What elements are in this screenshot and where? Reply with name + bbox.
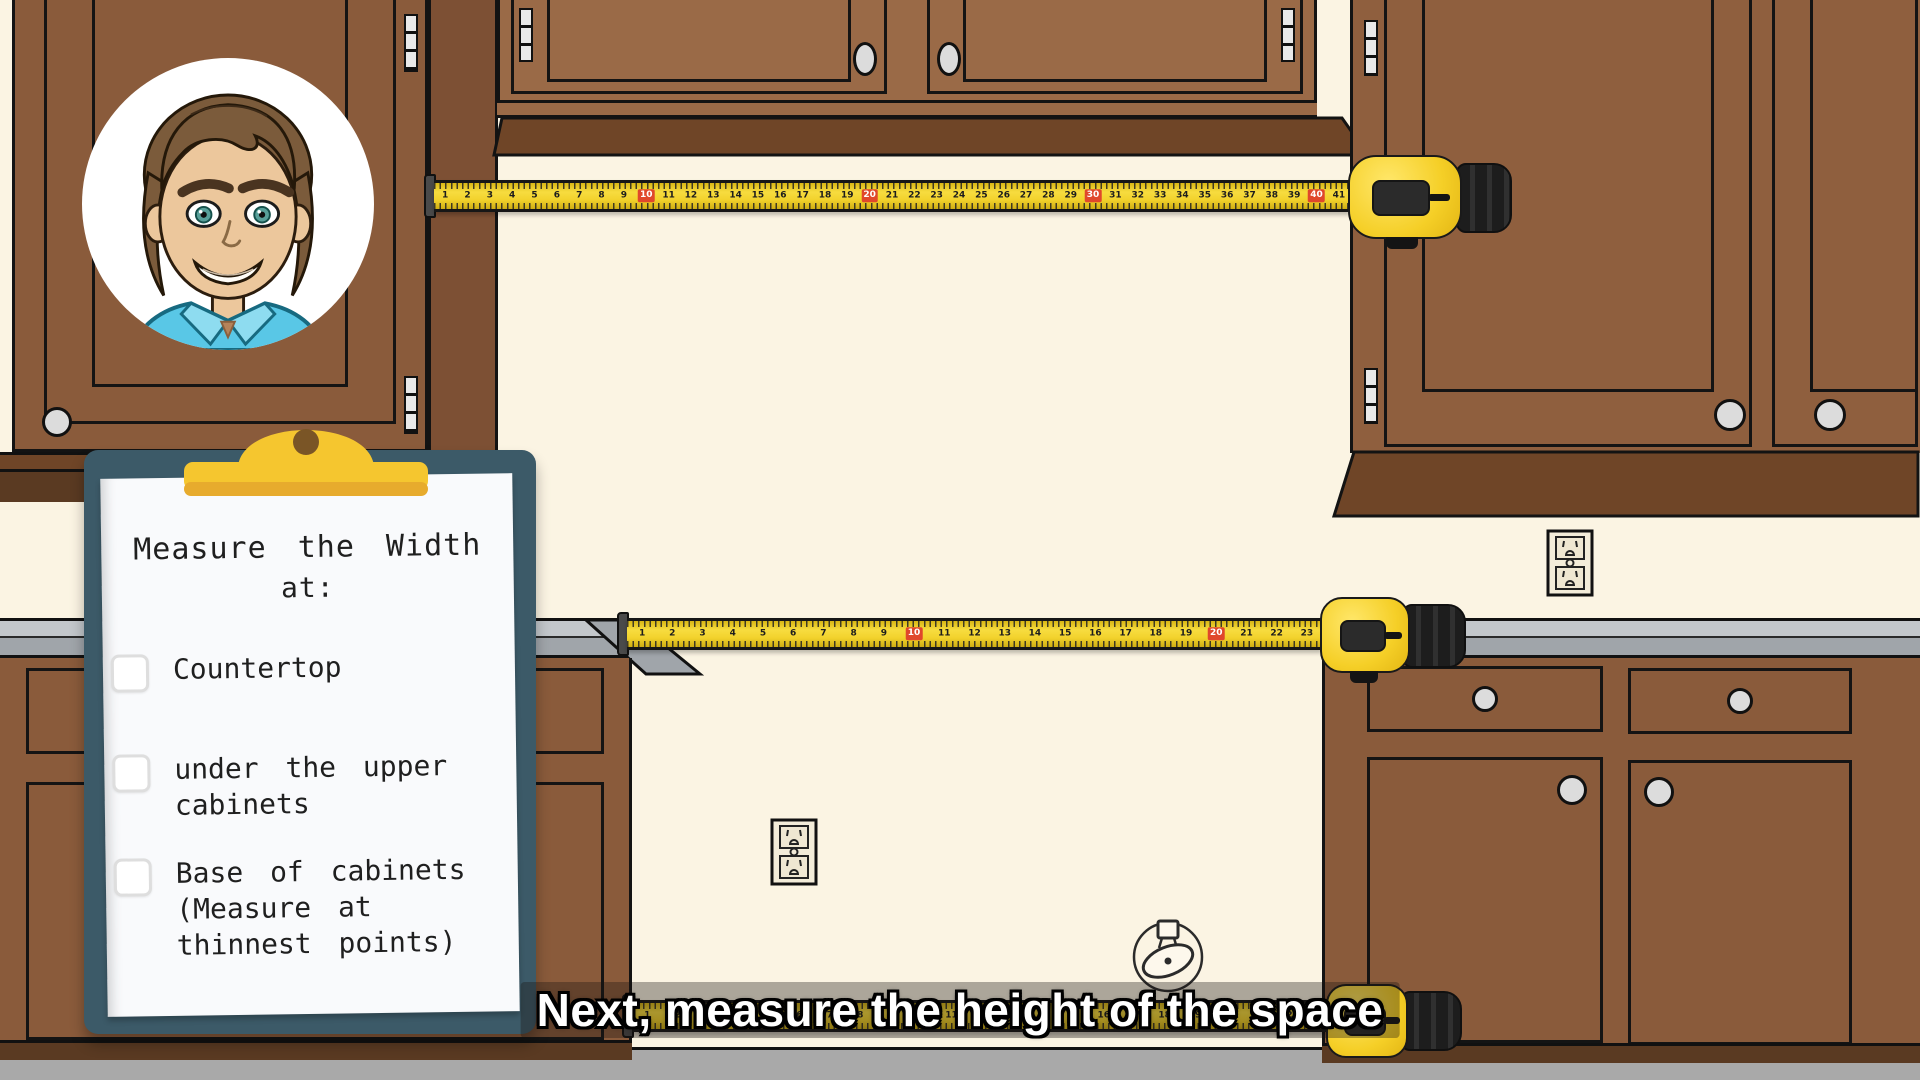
- tape-number: 16: [1089, 629, 1102, 638]
- tape-number: 8: [598, 191, 604, 200]
- lower-left-kickplate: [0, 1040, 632, 1060]
- tape-measure-blade: 1234567891011121314151617181920212223: [627, 618, 1322, 650]
- checklist-title-line1: Measure the Width: [101, 527, 513, 568]
- tape-number: 1: [442, 191, 448, 200]
- tape-number: 29: [1064, 191, 1077, 200]
- tape-number: 4: [730, 629, 736, 638]
- hinge-icon: [1364, 20, 1378, 76]
- tape-number: 22: [1270, 629, 1283, 638]
- tape-number: 7: [576, 191, 582, 200]
- tape-number: 18: [819, 191, 832, 200]
- upper-right-right-door-panel: [1810, 0, 1918, 392]
- checklist-item-label: Base of cabinets(Measure atthinnest poin…: [176, 852, 467, 964]
- tape-number: 3: [487, 191, 493, 200]
- tape-number: 22: [908, 191, 921, 200]
- door-knob: [1644, 777, 1674, 807]
- cabinet-knob: [1814, 399, 1846, 431]
- hinge-icon: [1281, 8, 1295, 62]
- tape-number: 12: [685, 191, 698, 200]
- tape-measure-blade: 1234567891011121314151617181920212223242…: [434, 180, 1350, 212]
- tape-number: 33: [1154, 191, 1167, 200]
- tape-number: 19: [841, 191, 854, 200]
- tape-number: 21: [886, 191, 899, 200]
- upper-center-right-door-panel: [963, 0, 1267, 82]
- tape-number: 5: [760, 629, 766, 638]
- tape-number: 5: [531, 191, 537, 200]
- tape-number: 35: [1199, 191, 1212, 200]
- tape-number: 27: [1020, 191, 1033, 200]
- tape-number: 23: [930, 191, 943, 200]
- tape-number: 13: [707, 191, 720, 200]
- hinge-icon: [519, 8, 533, 62]
- tape-number: 6: [790, 629, 796, 638]
- clipboard-paper: Measure the Width at: Countertopunder th…: [100, 473, 519, 1017]
- caption-text: Next, measure the height of the space: [537, 984, 1384, 1036]
- tape-number: 32: [1131, 191, 1144, 200]
- checklist-item-label: Countertop: [173, 650, 342, 688]
- cartoon-man-illustration: [82, 58, 374, 350]
- tape-number: 10: [638, 189, 655, 202]
- clipboard-clip: [180, 404, 432, 502]
- checkbox[interactable]: [114, 858, 153, 897]
- tape-number: 2: [669, 629, 675, 638]
- tape-number: 1: [639, 629, 645, 638]
- tape-number: 24: [953, 191, 966, 200]
- tape-number: 30: [1085, 189, 1102, 202]
- tape-number: 20: [861, 189, 878, 202]
- tape-number: 28: [1042, 191, 1055, 200]
- tape-number: 3: [699, 629, 705, 638]
- tape-number: 11: [662, 191, 675, 200]
- tape-number: 38: [1266, 191, 1279, 200]
- checklist-title-line2: at:: [102, 568, 514, 607]
- tape-number: 6: [554, 191, 560, 200]
- tape-number: 37: [1243, 191, 1256, 200]
- cabinet-knob: [937, 42, 961, 76]
- tape-number: 23: [1301, 629, 1314, 638]
- tape-number: 18: [1150, 629, 1163, 638]
- tape-number: 17: [796, 191, 809, 200]
- upper-center-molding: [492, 116, 1372, 158]
- upper-center-left-door-panel: [547, 0, 851, 82]
- tape-number: 26: [997, 191, 1010, 200]
- tape-number: 9: [621, 191, 627, 200]
- tape-number: 4: [509, 191, 515, 200]
- tape-number: 13: [998, 629, 1011, 638]
- tape-number: 17: [1119, 629, 1132, 638]
- tape-number: 31: [1109, 191, 1122, 200]
- tape-number: 20: [1208, 627, 1225, 640]
- checklist-title: Measure the Width at:: [101, 527, 514, 607]
- tape-number: 16: [774, 191, 787, 200]
- caption-bar: Next, measure the height of the space: [521, 982, 1400, 1038]
- tape-number: 7: [820, 629, 826, 638]
- tape-number: 36: [1221, 191, 1234, 200]
- tape-number: 40: [1308, 189, 1325, 202]
- checkbox[interactable]: [112, 754, 151, 793]
- tape-number: 15: [1059, 629, 1072, 638]
- drawer-knob: [1727, 688, 1753, 714]
- tape-number: 10: [906, 627, 923, 640]
- cabinet-knob: [42, 407, 72, 437]
- tape-number: 34: [1176, 191, 1189, 200]
- kitchen-scene: 1234567891011121314151617181920212223242…: [0, 0, 1920, 1080]
- hinge-icon: [1364, 368, 1378, 424]
- checklist-item: Base of cabinets(Measure atthinnest poin…: [114, 854, 467, 965]
- tape-number: 12: [968, 629, 981, 638]
- cabinet-knob: [853, 42, 877, 76]
- checkbox[interactable]: [111, 654, 150, 693]
- tape-number: 14: [1029, 629, 1042, 638]
- presenter-avatar: [82, 58, 374, 350]
- tape-number: 19: [1180, 629, 1193, 638]
- tape-number: 9: [881, 629, 887, 638]
- power-outlet-icon: [1546, 529, 1594, 597]
- checklist-item: under the uppercabinets: [112, 750, 448, 825]
- hinge-icon: [404, 14, 418, 72]
- door-knob: [1557, 775, 1587, 805]
- tape-number: 2: [464, 191, 470, 200]
- tape-number: 15: [752, 191, 765, 200]
- checklist-item: Countertop: [111, 652, 342, 693]
- drawer-knob: [1472, 686, 1498, 712]
- tape-number: 41: [1333, 191, 1346, 200]
- tape-number: 11: [938, 629, 951, 638]
- checklist-item-label: under the uppercabinets: [174, 748, 448, 824]
- power-outlet-icon: [770, 818, 818, 886]
- tape-number: 39: [1288, 191, 1301, 200]
- upper-right-molding: [1332, 450, 1920, 520]
- tape-number: 21: [1240, 629, 1253, 638]
- tape-number: 14: [729, 191, 742, 200]
- tape-number: 8: [850, 629, 856, 638]
- tape-number: 25: [975, 191, 988, 200]
- cabinet-knob: [1714, 399, 1746, 431]
